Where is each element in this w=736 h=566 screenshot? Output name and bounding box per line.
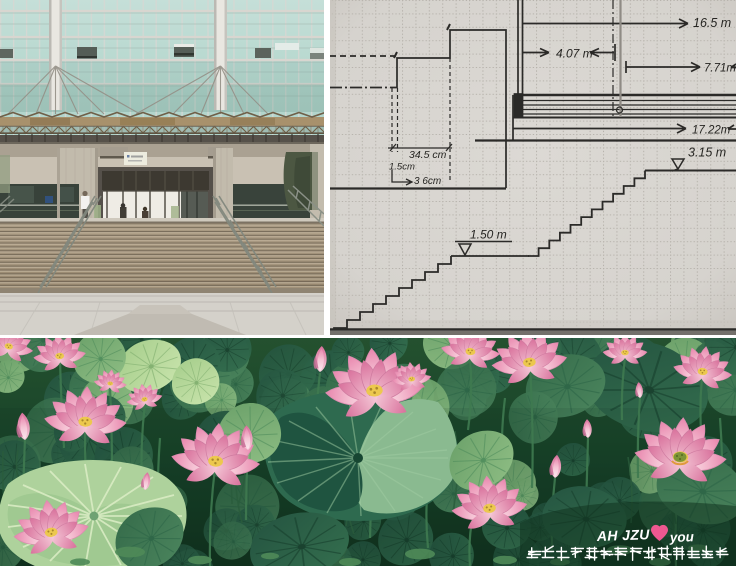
svg-text:17.22m: 17.22m [692, 125, 731, 137]
svg-text:7.71m: 7.71m [704, 63, 736, 75]
svg-text:16.5 m: 16.5 m [693, 16, 731, 30]
svg-text:34.5 cm: 34.5 cm [409, 149, 447, 161]
svg-text:1.5cm: 1.5cm [389, 162, 415, 173]
svg-text:AH JZU: AH JZU [596, 526, 651, 544]
svg-text:3 6cm: 3 6cm [414, 176, 441, 187]
svg-text:4.07 m: 4.07 m [556, 47, 593, 61]
svg-text:1.50 m: 1.50 m [470, 228, 507, 242]
svg-text:you: you [669, 529, 695, 545]
svg-text:3.15 m: 3.15 m [688, 146, 726, 160]
